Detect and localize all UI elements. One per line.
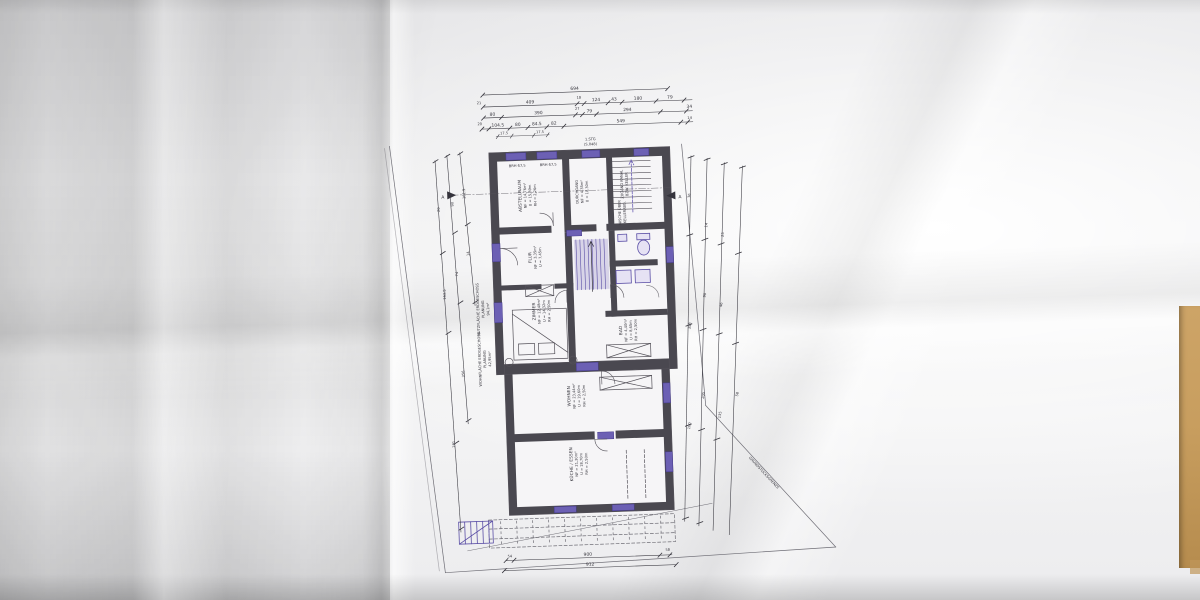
svg-text:14: 14 xyxy=(466,251,470,256)
svg-text:161.5: 161.5 xyxy=(462,189,466,199)
svg-text:294: 294 xyxy=(623,107,632,113)
svg-text:21: 21 xyxy=(477,101,482,105)
svg-text:54: 54 xyxy=(508,554,513,558)
svg-text:694: 694 xyxy=(570,86,579,92)
section-marker-left: A xyxy=(441,194,444,200)
sill-label: BRH 67,5 xyxy=(509,164,526,169)
svg-text:PLANUNG: PLANUNG xyxy=(481,300,486,318)
room-label: WOHNEN xyxy=(566,386,572,407)
svg-text:34: 34 xyxy=(686,104,692,110)
svg-text:58: 58 xyxy=(735,391,740,397)
sill-label-2: BRH 67,5 xyxy=(540,163,557,168)
svg-text:43: 43 xyxy=(611,96,617,102)
svg-text:20: 20 xyxy=(477,122,482,126)
svg-text:90: 90 xyxy=(450,201,454,206)
exterior-stairs xyxy=(459,521,494,544)
washbasin-2 xyxy=(635,269,650,283)
svg-text:BZW. KELLER: BZW. KELLER xyxy=(625,172,630,196)
svg-text:46: 46 xyxy=(719,301,724,307)
svg-text:900: 900 xyxy=(584,552,593,558)
svg-text:104.5: 104.5 xyxy=(491,122,504,128)
svg-text:27: 27 xyxy=(575,107,580,111)
svg-text:U = 7,45m: U = 7,45m xyxy=(538,247,543,267)
nische-label: NISCHE ÜBER xyxy=(616,200,622,225)
svg-text:14: 14 xyxy=(704,222,709,228)
svg-text:17.5: 17.5 xyxy=(536,130,544,134)
toilet-bowl xyxy=(637,240,650,255)
svg-text:NUTZFLÄCHE ERDGESCHOSS: NUTZFLÄCHE ERDGESCHOSS xyxy=(474,282,481,335)
svg-text:PLANUNG: PLANUNG xyxy=(483,350,488,368)
photo-of-floor-plan: GRUNDSTÜCKSGRENZE xyxy=(0,0,1200,600)
svg-text:WOHNFLÄCHE ERDGESCHOSS: WOHNFLÄCHE ERDGESCHOSS xyxy=(476,331,483,386)
dimension-values-left: 161.5 14 90 74 356 20 163.5 191 xyxy=(436,188,477,448)
svg-text:RH = 2,50m: RH = 2,50m xyxy=(582,384,587,407)
svg-text:80: 80 xyxy=(515,122,521,128)
svg-text:358: 358 xyxy=(687,321,692,329)
wc-window xyxy=(618,234,627,241)
svg-text:RH = 2,50m: RH = 2,50m xyxy=(547,299,552,322)
svg-text:409: 409 xyxy=(526,99,535,105)
svg-text:79: 79 xyxy=(586,108,592,114)
room-label: ZIMMER xyxy=(531,302,537,320)
svg-text:90: 90 xyxy=(703,292,708,298)
svg-text:100: 100 xyxy=(687,422,692,430)
area-notes: NUTZFLÄCHE ERDGESCHOSS PLANUNG 94,1m² WO… xyxy=(474,282,493,387)
washbasin xyxy=(616,270,631,284)
svg-text:U = 19,60m: U = 19,60m xyxy=(577,384,582,406)
svg-text:82: 82 xyxy=(551,121,557,127)
svg-text:14: 14 xyxy=(687,116,692,120)
svg-text:RH = 2,50m: RH = 2,50m xyxy=(634,318,639,341)
room-label: FLUR xyxy=(527,252,532,263)
room-label: DURCHGANG xyxy=(575,180,580,204)
svg-text:912: 912 xyxy=(586,561,595,567)
svg-text:RH = 2,50m: RH = 2,50m xyxy=(584,452,589,475)
svg-text:U = 10,30m: U = 10,30m xyxy=(585,180,590,202)
svg-text:NF = 3,35m²: NF = 3,35m² xyxy=(533,245,538,269)
svg-text:124: 124 xyxy=(592,97,601,103)
svg-text:U = 14,32m: U = 14,32m xyxy=(542,300,547,322)
svg-text:356: 356 xyxy=(461,370,465,378)
svg-text:180: 180 xyxy=(634,96,643,102)
svg-text:17.5: 17.5 xyxy=(500,131,508,135)
svg-text:KELLERABG.: KELLERABG. xyxy=(623,201,628,223)
svg-text:74: 74 xyxy=(455,271,459,276)
boundary-label: GRUNDSTÜCKSGRENZE xyxy=(748,455,781,490)
svg-text:42,95m²: 42,95m² xyxy=(488,351,493,367)
floor-plan-drawing: GRUNDSTÜCKSGRENZE xyxy=(0,0,1200,600)
svg-text:U = 8,65m: U = 8,65m xyxy=(629,320,634,340)
stair-note-2: (S.048) xyxy=(584,142,598,146)
svg-text:36: 36 xyxy=(687,193,692,199)
dimension-chain-right xyxy=(670,154,758,536)
stair-note: 1.STG xyxy=(585,137,596,141)
svg-text:163.5: 163.5 xyxy=(443,289,447,299)
svg-text:191: 191 xyxy=(452,441,456,448)
section-arrow-left xyxy=(447,191,456,199)
svg-text:135: 135 xyxy=(718,411,723,418)
room-label: BAD xyxy=(618,326,623,336)
svg-text:25: 25 xyxy=(720,232,725,237)
svg-text:390: 390 xyxy=(534,110,543,116)
svg-text:U = 15,39m: U = 15,39m xyxy=(528,184,533,206)
svg-text:79: 79 xyxy=(667,94,673,100)
svg-text:549: 549 xyxy=(616,118,625,124)
svg-text:80: 80 xyxy=(490,112,496,118)
svg-text:18: 18 xyxy=(577,96,582,100)
section-marker-right: A xyxy=(678,194,681,200)
svg-text:84.5: 84.5 xyxy=(532,121,542,127)
svg-text:U = 18,70m: U = 18,70m xyxy=(579,452,584,474)
svg-text:NF = 4,40m²: NF = 4,40m² xyxy=(624,318,629,342)
svg-text:58: 58 xyxy=(665,548,670,552)
dimension-values-right: 36 100 358 205 90 14 135 46 25 58 xyxy=(679,191,741,430)
main-stair xyxy=(574,239,610,292)
svg-text:RH = 2,26m: RH = 2,26m xyxy=(533,184,538,207)
svg-text:94,1m²: 94,1m² xyxy=(486,302,490,316)
toilet-tank xyxy=(637,233,650,239)
svg-text:20: 20 xyxy=(437,207,441,212)
svg-text:NF = 4,35m²: NF = 4,35m² xyxy=(580,180,585,204)
